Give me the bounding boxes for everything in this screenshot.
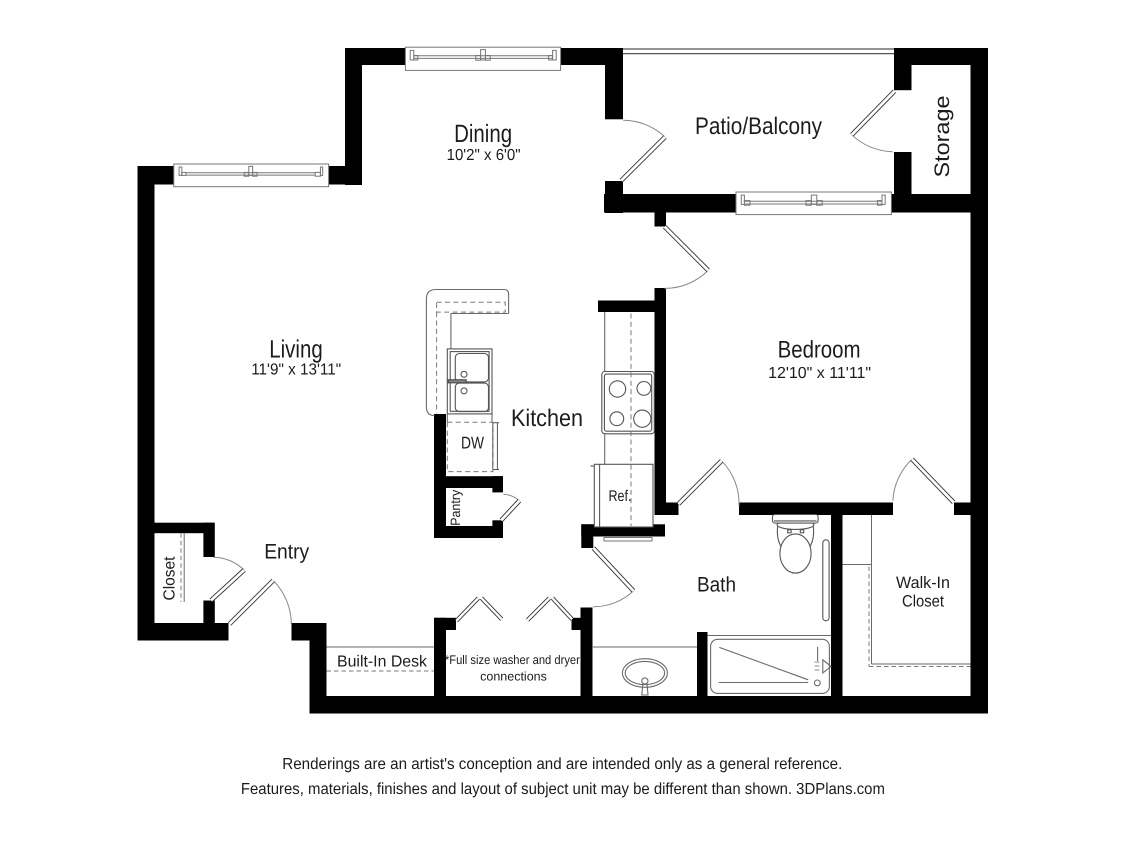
svg-text:Renderings are an artist's con: Renderings are an artist's conception an… <box>282 756 842 773</box>
svg-text:Pantry: Pantry <box>448 490 463 526</box>
svg-text:Bath: Bath <box>697 574 736 597</box>
svg-text:*Full size washer and dryer: *Full size washer and dryer <box>445 653 580 667</box>
svg-text:Bedroom: Bedroom <box>778 336 861 363</box>
svg-text:connections: connections <box>480 669 547 683</box>
svg-text:Entry: Entry <box>264 540 309 563</box>
svg-text:Features, materials, finishes: Features, materials, finishes and layout… <box>241 781 885 798</box>
svg-text:Ref.: Ref. <box>609 488 632 505</box>
svg-text:Built-In Desk: Built-In Desk <box>337 654 428 671</box>
svg-text:Patio/Balcony: Patio/Balcony <box>695 113 822 140</box>
svg-text:Kitchen: Kitchen <box>511 405 583 432</box>
svg-text:10'2" x 6'0": 10'2" x 6'0" <box>447 147 521 164</box>
svg-text:Dining: Dining <box>454 120 512 148</box>
svg-text:DW: DW <box>461 433 484 452</box>
svg-text:Walk-In: Walk-In <box>896 574 950 592</box>
svg-text:Closet: Closet <box>162 556 179 601</box>
svg-text:11'9" x 13'11": 11'9" x 13'11" <box>251 362 341 379</box>
svg-text:Closet: Closet <box>902 593 944 611</box>
svg-text:12'10" x 11'11": 12'10" x 11'11" <box>768 365 871 382</box>
svg-text:Living: Living <box>269 335 323 363</box>
svg-text:Storage: Storage <box>931 96 954 178</box>
